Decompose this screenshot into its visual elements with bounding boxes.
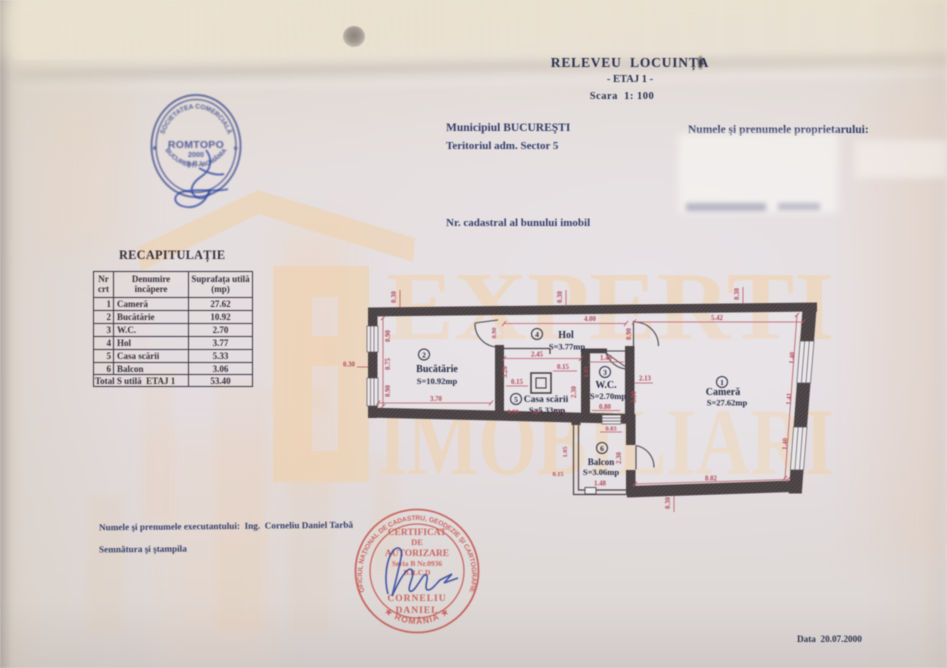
svg-text:DE: DE [411,537,423,547]
svg-text:★: ★ [233,145,239,152]
svg-text:SOCIETATEA COMERCIALĂ: SOCIETATEA COMERCIALĂ [159,103,234,135]
svg-text:★: ★ [152,145,158,152]
svg-text:2000: 2000 [188,150,204,159]
svg-text:CORNELIU: CORNELIU [387,594,446,604]
svg-text:DANIEL: DANIEL [396,606,439,616]
svg-text:S.R.L.: S.R.L. [186,161,205,168]
